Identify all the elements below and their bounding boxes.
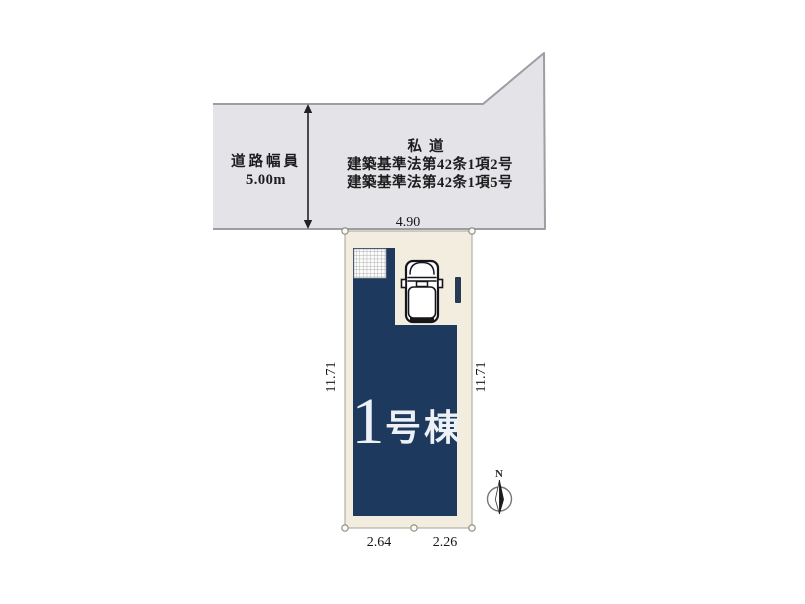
- compass-north-label: N: [495, 468, 503, 480]
- vertex-top-right: [469, 228, 475, 234]
- building-label-number: 1: [352, 385, 385, 458]
- private-road-label: 私道: [408, 137, 451, 155]
- entrance-marker-bar: [455, 277, 461, 303]
- dimension-bottom-right: 2.26: [433, 535, 458, 550]
- site-plan-page: 道路幅員 5.00m 私道 建築基準法第42条1項2号 建築基準法第42条1項5…: [0, 0, 805, 604]
- parking-hatch-area: [354, 249, 386, 278]
- site-plan-diagram: 道路幅員 5.00m 私道 建築基準法第42条1項2号 建築基準法第42条1項5…: [0, 0, 805, 604]
- compass: N: [488, 468, 512, 514]
- road-area: 道路幅員 5.00m 私道 建築基準法第42条1項2号 建築基準法第42条1項5…: [213, 53, 545, 229]
- building-standards-law-line1: 建築基準法第42条1項2号: [347, 155, 513, 173]
- dimension-top: 4.90: [396, 215, 421, 230]
- building-standards-law-line2: 建築基準法第42条1項5号: [347, 173, 513, 191]
- plot-parcel: 1 号棟 4.90 11.71 11.71 2.64 2.26: [324, 215, 489, 550]
- dimension-bottom-left: 2.64: [367, 535, 392, 550]
- vertex-bottom-left: [342, 525, 348, 531]
- dimension-left: 11.71: [324, 362, 339, 393]
- dimension-right: 11.71: [474, 362, 489, 393]
- building-label-suffix: 号棟: [385, 408, 463, 448]
- road-width-label: 道路幅員: [231, 152, 301, 170]
- car-icon: [402, 261, 443, 322]
- vertex-top-left: [342, 228, 348, 234]
- road-fill-shape: [213, 53, 545, 229]
- vertex-bottom-right: [469, 525, 475, 531]
- vertex-bottom-mid: [411, 525, 417, 531]
- road-width-value: 5.00m: [246, 172, 286, 188]
